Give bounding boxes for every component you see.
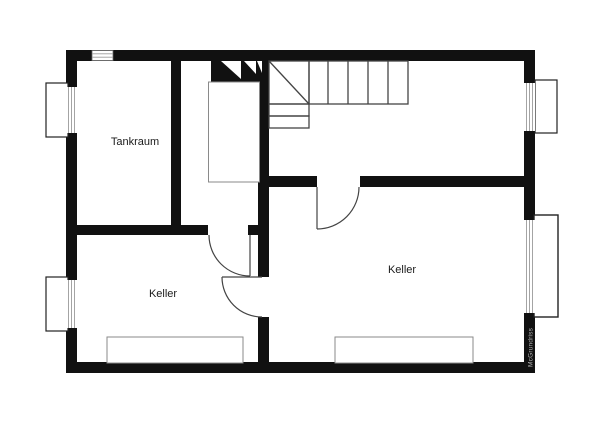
door-swing-arc <box>209 235 250 276</box>
window-sill-box <box>535 80 557 133</box>
window-right-hall <box>524 80 557 133</box>
window-right-keller <box>524 215 558 317</box>
shaft-outline <box>209 82 260 182</box>
window-left-keller <box>46 277 77 331</box>
floor-plan-page: Tankraum Keller Keller McGrundriss <box>0 0 611 432</box>
door-vestibule-keller-left <box>209 235 250 276</box>
window-left-tankraum <box>46 83 77 137</box>
window-sill-box <box>46 277 68 331</box>
window-top-tankraum <box>92 51 113 61</box>
wall-hall-right <box>360 176 524 187</box>
wall-divider-left <box>77 225 208 235</box>
windows <box>46 51 558 332</box>
stair-step-row-2 <box>269 116 309 128</box>
room-label-tankraum: Tankraum <box>111 136 159 148</box>
wall-divider-stub <box>248 225 258 235</box>
door-swing-arc <box>317 187 359 229</box>
wall-tankraum-right <box>171 61 181 235</box>
chimney-symbol <box>211 61 262 82</box>
wall-hall-stub <box>258 176 317 187</box>
stair-flight <box>309 61 408 104</box>
floor-plan-drawing: Tankraum Keller Keller McGrundriss <box>0 0 611 432</box>
wall-center-lower <box>258 317 269 363</box>
door-between-kellers <box>222 277 262 317</box>
watermark-text: McGrundriss <box>528 327 535 367</box>
wall-bottom <box>66 362 535 373</box>
fixture-keller-left <box>107 337 243 363</box>
fixture-keller-right <box>335 337 473 363</box>
stair-winder-diagonal <box>269 61 309 104</box>
door-hall-keller-right <box>317 187 359 229</box>
room-label-keller-right: Keller <box>388 264 416 276</box>
walls <box>66 50 535 373</box>
bottom-fixtures <box>107 337 473 363</box>
window-glazing <box>92 51 113 61</box>
door-swing-arc <box>222 277 262 317</box>
window-sill-box <box>46 83 68 137</box>
room-label-keller-left: Keller <box>149 288 177 300</box>
stair-step-row-1 <box>269 104 309 116</box>
doors <box>209 187 359 317</box>
staircase <box>269 61 408 128</box>
wall-top <box>66 50 535 61</box>
window-sill-box <box>534 215 558 317</box>
